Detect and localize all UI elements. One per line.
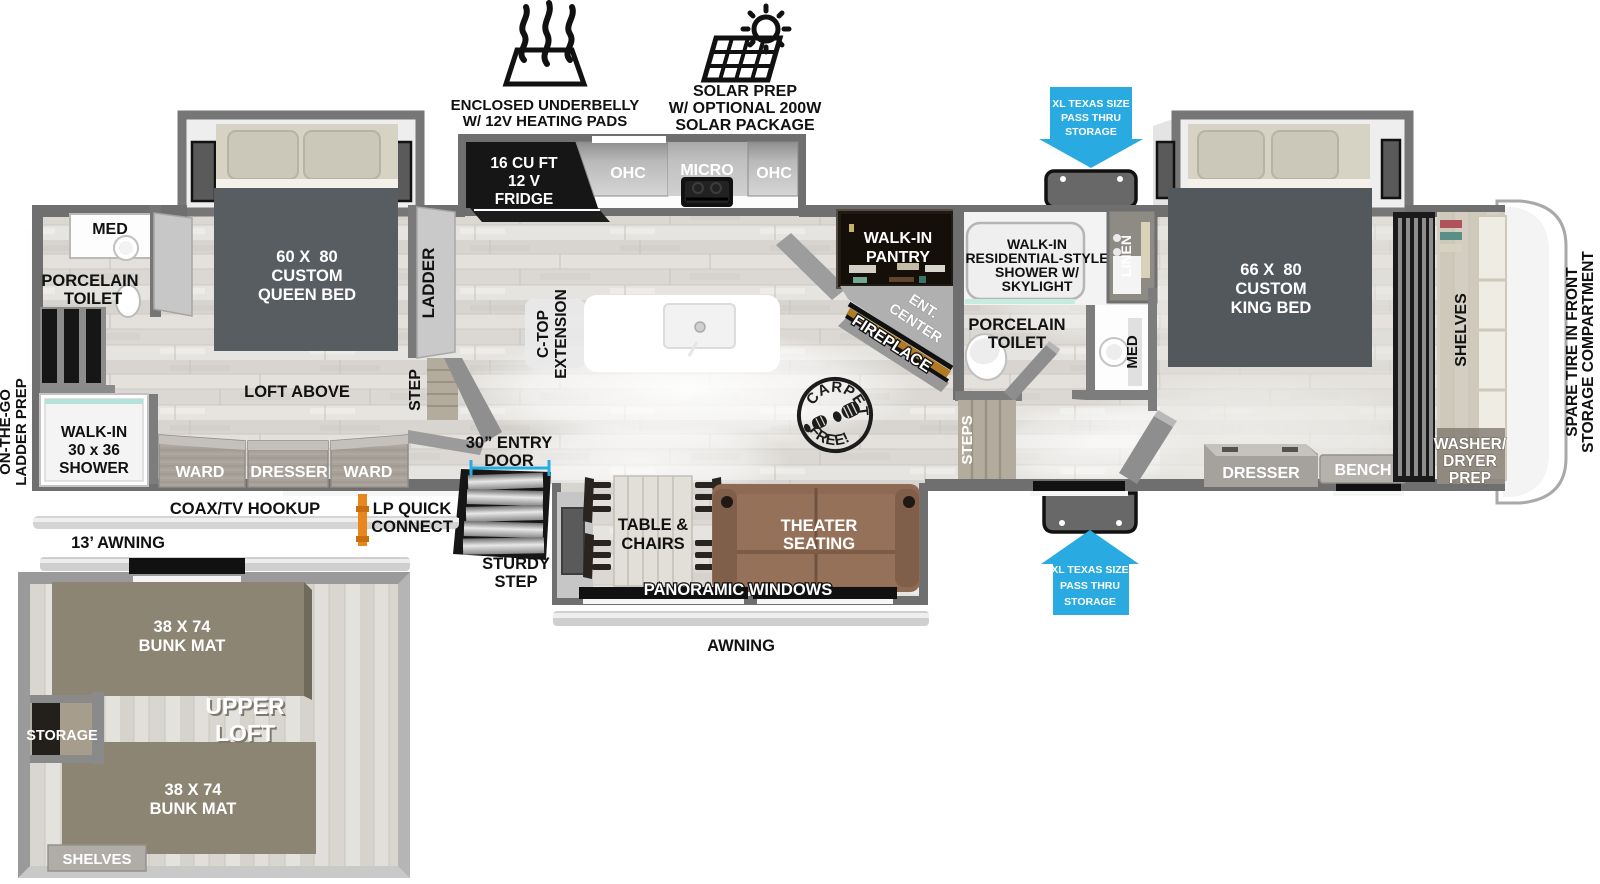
svg-text:LINEN: LINEN (1118, 235, 1134, 277)
svg-text:STEPS: STEPS (959, 415, 976, 464)
svg-text:CONNECT: CONNECT (371, 518, 453, 536)
svg-text:38 X 74: 38 X 74 (154, 618, 212, 636)
svg-text:LOFT ABOVE: LOFT ABOVE (244, 383, 350, 401)
svg-text:OHC: OHC (756, 165, 792, 182)
svg-text:STORAGE: STORAGE (1064, 596, 1116, 608)
svg-text:MED: MED (1124, 335, 1141, 369)
svg-text:MICRO: MICRO (680, 162, 733, 179)
svg-text:OHC: OHC (610, 165, 646, 182)
svg-text:ENCLOSED UNDERBELLY: ENCLOSED UNDERBELLY (451, 97, 640, 114)
svg-text:STORAGE: STORAGE (1065, 126, 1117, 138)
svg-text:BUNK MAT: BUNK MAT (150, 800, 237, 818)
svg-text:FRIDGE: FRIDGE (495, 191, 554, 208)
svg-text:SEATING: SEATING (783, 535, 855, 553)
svg-text:UPPER: UPPER (205, 693, 285, 719)
svg-text:W/ 12V HEATING PADS: W/ 12V HEATING PADS (463, 113, 627, 130)
svg-text:30 x 36: 30 x 36 (68, 442, 120, 459)
svg-text:WALK-IN: WALK-IN (864, 230, 932, 247)
svg-text:WARD: WARD (176, 464, 225, 481)
svg-text:16 CU FT: 16 CU FT (490, 155, 558, 172)
svg-text:PORCELAIN: PORCELAIN (968, 316, 1065, 334)
svg-text:DRESSER: DRESSER (1222, 465, 1300, 482)
svg-text:CUSTOM: CUSTOM (271, 267, 342, 285)
svg-text:MED: MED (92, 221, 128, 238)
svg-text:PORCELAIN: PORCELAIN (41, 272, 138, 290)
svg-text:SPARE TIRE IN FRONT: SPARE TIRE IN FRONT (1564, 267, 1581, 437)
svg-text:PANTRY: PANTRY (866, 249, 930, 266)
svg-text:DRESSER: DRESSER (250, 464, 328, 481)
svg-text:TOILET: TOILET (64, 290, 122, 308)
svg-text:XL TEXAS SIZE: XL TEXAS SIZE (1051, 564, 1128, 576)
svg-text:66 X 80: 66 X 80 (1240, 261, 1301, 279)
svg-text:SHELVES: SHELVES (1453, 293, 1470, 367)
svg-text:SOLAR PREP: SOLAR PREP (693, 83, 797, 100)
svg-text:STORAGE COMPARTMENT: STORAGE COMPARTMENT (1580, 251, 1597, 453)
svg-text:W/ OPTIONAL 200W: W/ OPTIONAL 200W (669, 100, 823, 117)
svg-text:STEP: STEP (407, 369, 424, 411)
svg-text:CUSTOM: CUSTOM (1235, 280, 1306, 298)
svg-text:DRYER: DRYER (1443, 453, 1497, 470)
svg-text:ON-THE-GO: ON-THE-GO (0, 389, 14, 475)
svg-text:QUEEN BED: QUEEN BED (258, 286, 356, 304)
svg-text:38 X 74: 38 X 74 (165, 781, 223, 799)
svg-text:30” ENTRY: 30” ENTRY (466, 434, 553, 452)
svg-text:CHAIRS: CHAIRS (621, 535, 684, 553)
svg-text:KING BED: KING BED (1231, 299, 1312, 317)
svg-text:COAX/TV HOOKUP: COAX/TV HOOKUP (170, 500, 320, 518)
svg-text:WALK-IN: WALK-IN (61, 424, 127, 441)
svg-text:TOILET: TOILET (988, 334, 1046, 352)
svg-text:STURDY: STURDY (482, 555, 550, 573)
svg-text:PASS THRU: PASS THRU (1061, 112, 1121, 124)
svg-text:THEATER: THEATER (781, 517, 858, 535)
svg-text:13’ AWNING: 13’ AWNING (71, 534, 165, 552)
svg-text:AWNING: AWNING (707, 637, 775, 655)
svg-text:12 V: 12 V (508, 173, 541, 190)
svg-text:STEP: STEP (494, 573, 537, 591)
svg-text:STORAGE: STORAGE (26, 728, 98, 744)
svg-text:EXTENSION: EXTENSION (553, 289, 570, 379)
svg-text:PREP: PREP (1449, 470, 1491, 487)
svg-text:LADDER PREP: LADDER PREP (13, 378, 30, 486)
svg-text:BENCH: BENCH (1335, 462, 1392, 479)
svg-text:DOOR: DOOR (484, 452, 534, 470)
svg-text:PASS THRU: PASS THRU (1060, 580, 1120, 592)
svg-text:BUNK MAT: BUNK MAT (139, 637, 226, 655)
svg-text:WARD: WARD (344, 464, 393, 481)
svg-text:SHOWER: SHOWER (59, 460, 129, 477)
svg-text:60 X 80: 60 X 80 (276, 248, 337, 266)
svg-text:LADDER: LADDER (419, 248, 438, 319)
svg-text:XL TEXAS SIZE: XL TEXAS SIZE (1052, 98, 1129, 110)
svg-text:WASHER/: WASHER/ (1434, 436, 1507, 453)
svg-text:LP QUICK: LP QUICK (373, 500, 452, 518)
svg-text:PANORAMIC WINDOWS: PANORAMIC WINDOWS (644, 581, 833, 599)
svg-text:SHELVES: SHELVES (63, 851, 132, 868)
svg-text:C-TOP: C-TOP (535, 310, 552, 358)
svg-text:TABLE &: TABLE & (618, 516, 688, 534)
svg-text:LOFT: LOFT (215, 720, 275, 746)
svg-text:SKYLIGHT: SKYLIGHT (1002, 278, 1073, 294)
svg-text:SOLAR PACKAGE: SOLAR PACKAGE (675, 117, 815, 134)
